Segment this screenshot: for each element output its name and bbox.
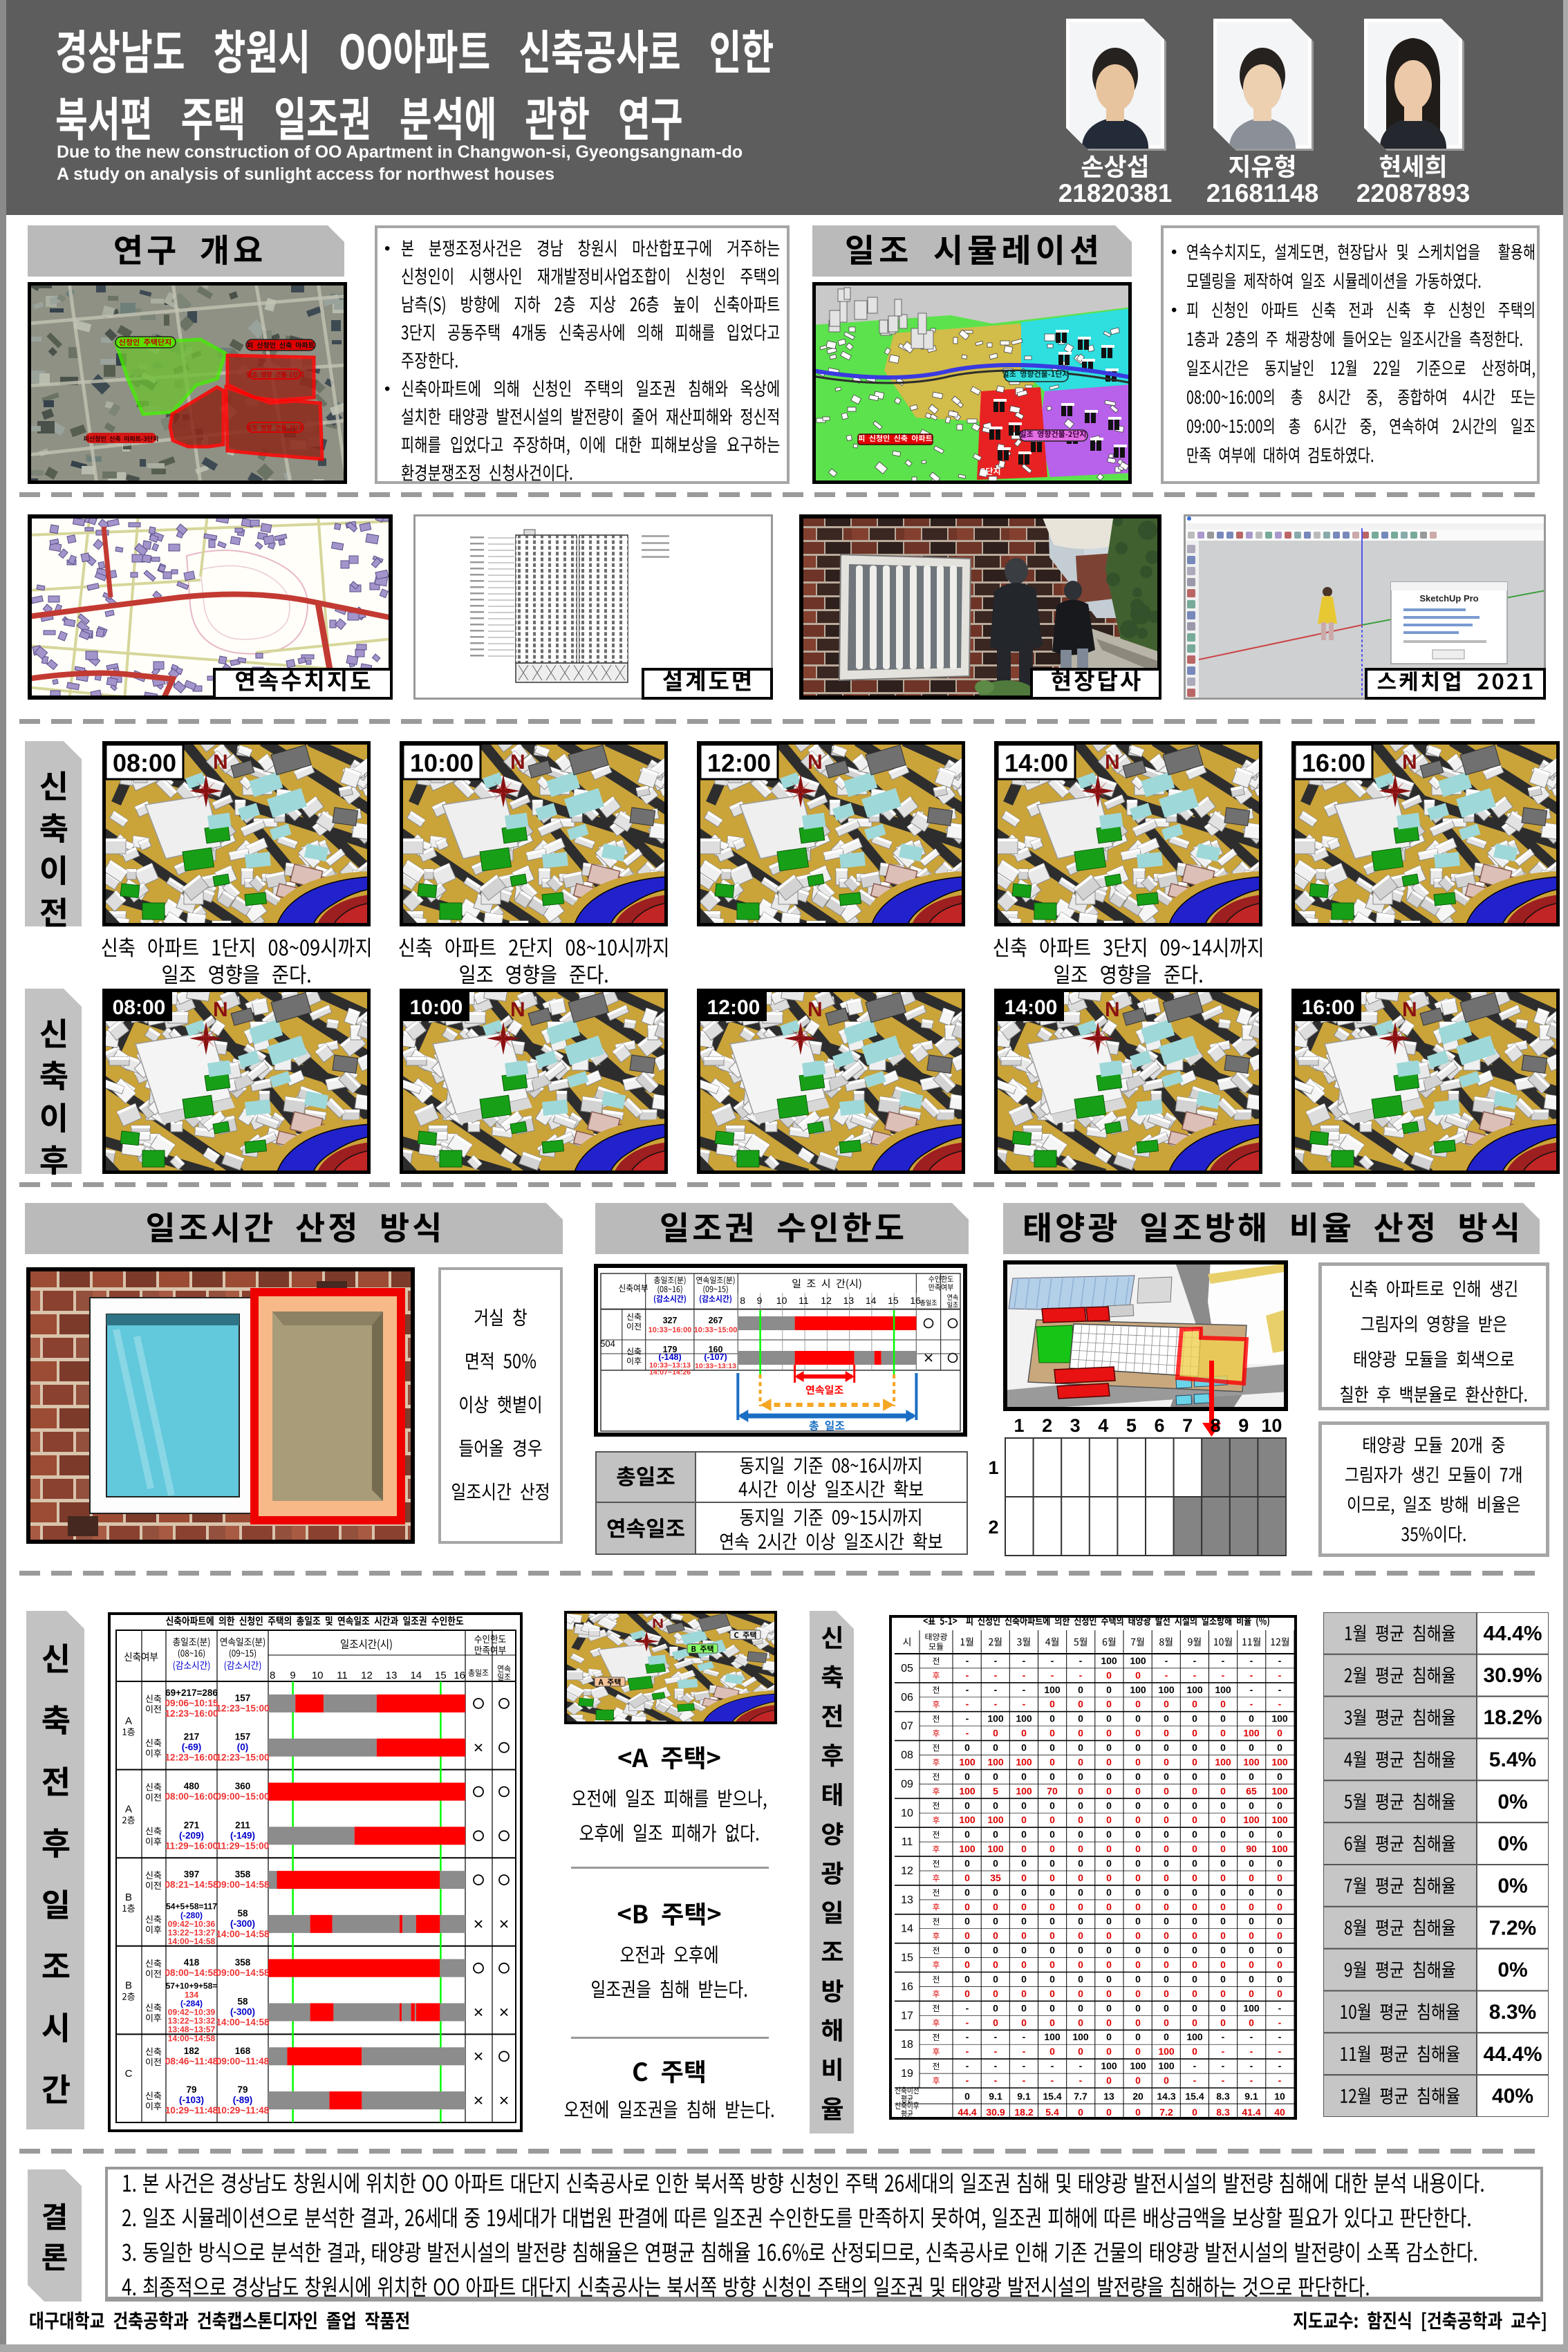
svg-text:•: •: [1171, 301, 1177, 319]
svg-text:1: 1: [988, 1457, 998, 1478]
svg-text:22087893: 22087893: [1356, 179, 1471, 207]
svg-text:5: 5: [1126, 1415, 1137, 1436]
svg-text:•: •: [384, 239, 390, 258]
svg-text:B: B: [125, 1980, 132, 1992]
svg-text:1: 1: [1014, 1415, 1024, 1436]
svg-text:A: A: [125, 1715, 132, 1727]
svg-text:21820381: 21820381: [1058, 179, 1173, 207]
svg-text:C: C: [125, 2068, 133, 2080]
svg-text:8: 8: [1211, 1415, 1221, 1436]
svg-text:•: •: [384, 380, 390, 398]
svg-text:4: 4: [1098, 1415, 1108, 1436]
svg-text:21681148: 21681148: [1206, 179, 1319, 207]
svg-text:9: 9: [1238, 1415, 1249, 1436]
svg-text:2: 2: [988, 1517, 998, 1538]
svg-text:A study on analysis of sunligh: A study on analysis of sunlight access f…: [57, 165, 554, 184]
svg-text:Due to the new construction of: Due to the new construction of OO Apartm…: [57, 142, 743, 162]
svg-text:6: 6: [1154, 1415, 1164, 1436]
svg-text:2: 2: [1042, 1415, 1052, 1436]
svg-text:B: B: [125, 1892, 132, 1903]
svg-text:7: 7: [1182, 1415, 1193, 1436]
svg-text:•: •: [1171, 243, 1177, 261]
svg-text:10: 10: [1261, 1415, 1282, 1436]
svg-text:A: A: [125, 1803, 132, 1815]
svg-text:3: 3: [1070, 1415, 1081, 1436]
